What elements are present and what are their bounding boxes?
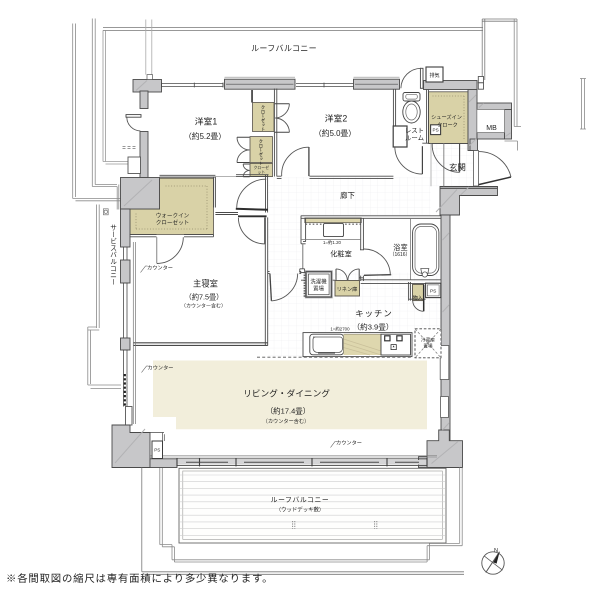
svg-text:冷蔵庫: 冷蔵庫 xyxy=(421,337,435,344)
svg-text:リビング・ダイニング: リビング・ダイニング xyxy=(243,388,330,399)
svg-text:（約5.0畳）: （約5.0畳） xyxy=(314,128,356,138)
svg-text:排気: 排気 xyxy=(429,72,439,79)
svg-text:ルーム: ルーム xyxy=(405,134,424,142)
svg-text:シューズイン: シューズイン xyxy=(431,113,462,121)
svg-text:置場: 置場 xyxy=(313,285,324,293)
svg-text:ルーフバルコニー: ルーフバルコニー xyxy=(251,44,317,53)
svg-text:カウンター: カウンター xyxy=(147,264,173,272)
svg-text:レスト: レスト xyxy=(405,127,424,135)
svg-text:1=約2700: 1=約2700 xyxy=(330,326,350,333)
svg-text:N: N xyxy=(494,548,498,554)
svg-text:物入: 物入 xyxy=(413,295,423,302)
svg-text:PS: PS xyxy=(433,128,439,133)
svg-text:リネン庫: リネン庫 xyxy=(337,285,358,293)
svg-text:※各間取図の縮尺は専有面積により多少異なります。: ※各間取図の縮尺は専有面積により多少異なります。 xyxy=(6,572,273,585)
svg-text:ウォークイン: ウォークイン xyxy=(156,212,190,220)
svg-text:化粧室: 化粧室 xyxy=(330,250,352,259)
svg-text:（約3.9畳）: （約3.9畳） xyxy=(353,322,394,332)
svg-text:PS: PS xyxy=(430,288,436,294)
svg-text:カウンター: カウンター xyxy=(148,364,174,372)
svg-text:クローゼット: クローゼット xyxy=(258,139,264,166)
svg-text:（約17.4畳）: （約17.4畳） xyxy=(266,406,311,416)
svg-text:廊下: 廊下 xyxy=(340,191,355,200)
svg-text:カウンター: カウンター xyxy=(336,439,362,447)
svg-text:洋室2: 洋室2 xyxy=(325,113,348,124)
svg-text:（ウッドデッキ敷）: （ウッドデッキ敷） xyxy=(276,506,325,514)
svg-text:クローゼット: クローゼット xyxy=(260,105,266,132)
svg-text:MB: MB xyxy=(486,125,497,132)
svg-text:（1616）: （1616） xyxy=(389,252,410,258)
svg-text:浴室: 浴室 xyxy=(393,243,407,252)
svg-text:PS: PS xyxy=(154,448,160,453)
svg-text:玄関: 玄関 xyxy=(449,163,466,173)
svg-text:（約7.5畳）: （約7.5畳） xyxy=(185,293,224,302)
svg-text:洋室1: 洋室1 xyxy=(195,116,218,127)
svg-text:（約5.2畳）: （約5.2畳） xyxy=(184,131,226,141)
svg-text:ルーフバルコニー: ルーフバルコニー xyxy=(271,496,330,504)
svg-text:（カウンター含む）: （カウンター含む） xyxy=(263,417,310,425)
svg-text:（カウンター含む）: （カウンター含む） xyxy=(181,303,226,310)
svg-text:置場: 置場 xyxy=(423,343,433,350)
svg-text:クローク: クローク xyxy=(437,122,458,129)
svg-text:洗濯機: 洗濯機 xyxy=(310,278,327,286)
svg-text:主寝室: 主寝室 xyxy=(193,279,218,289)
svg-text:クローゼット: クローゼット xyxy=(156,219,190,227)
svg-text:1=約1.20: 1=約1.20 xyxy=(323,239,342,246)
svg-text:ット: ット xyxy=(257,170,265,175)
svg-text:キッチン: キッチン xyxy=(355,309,393,319)
